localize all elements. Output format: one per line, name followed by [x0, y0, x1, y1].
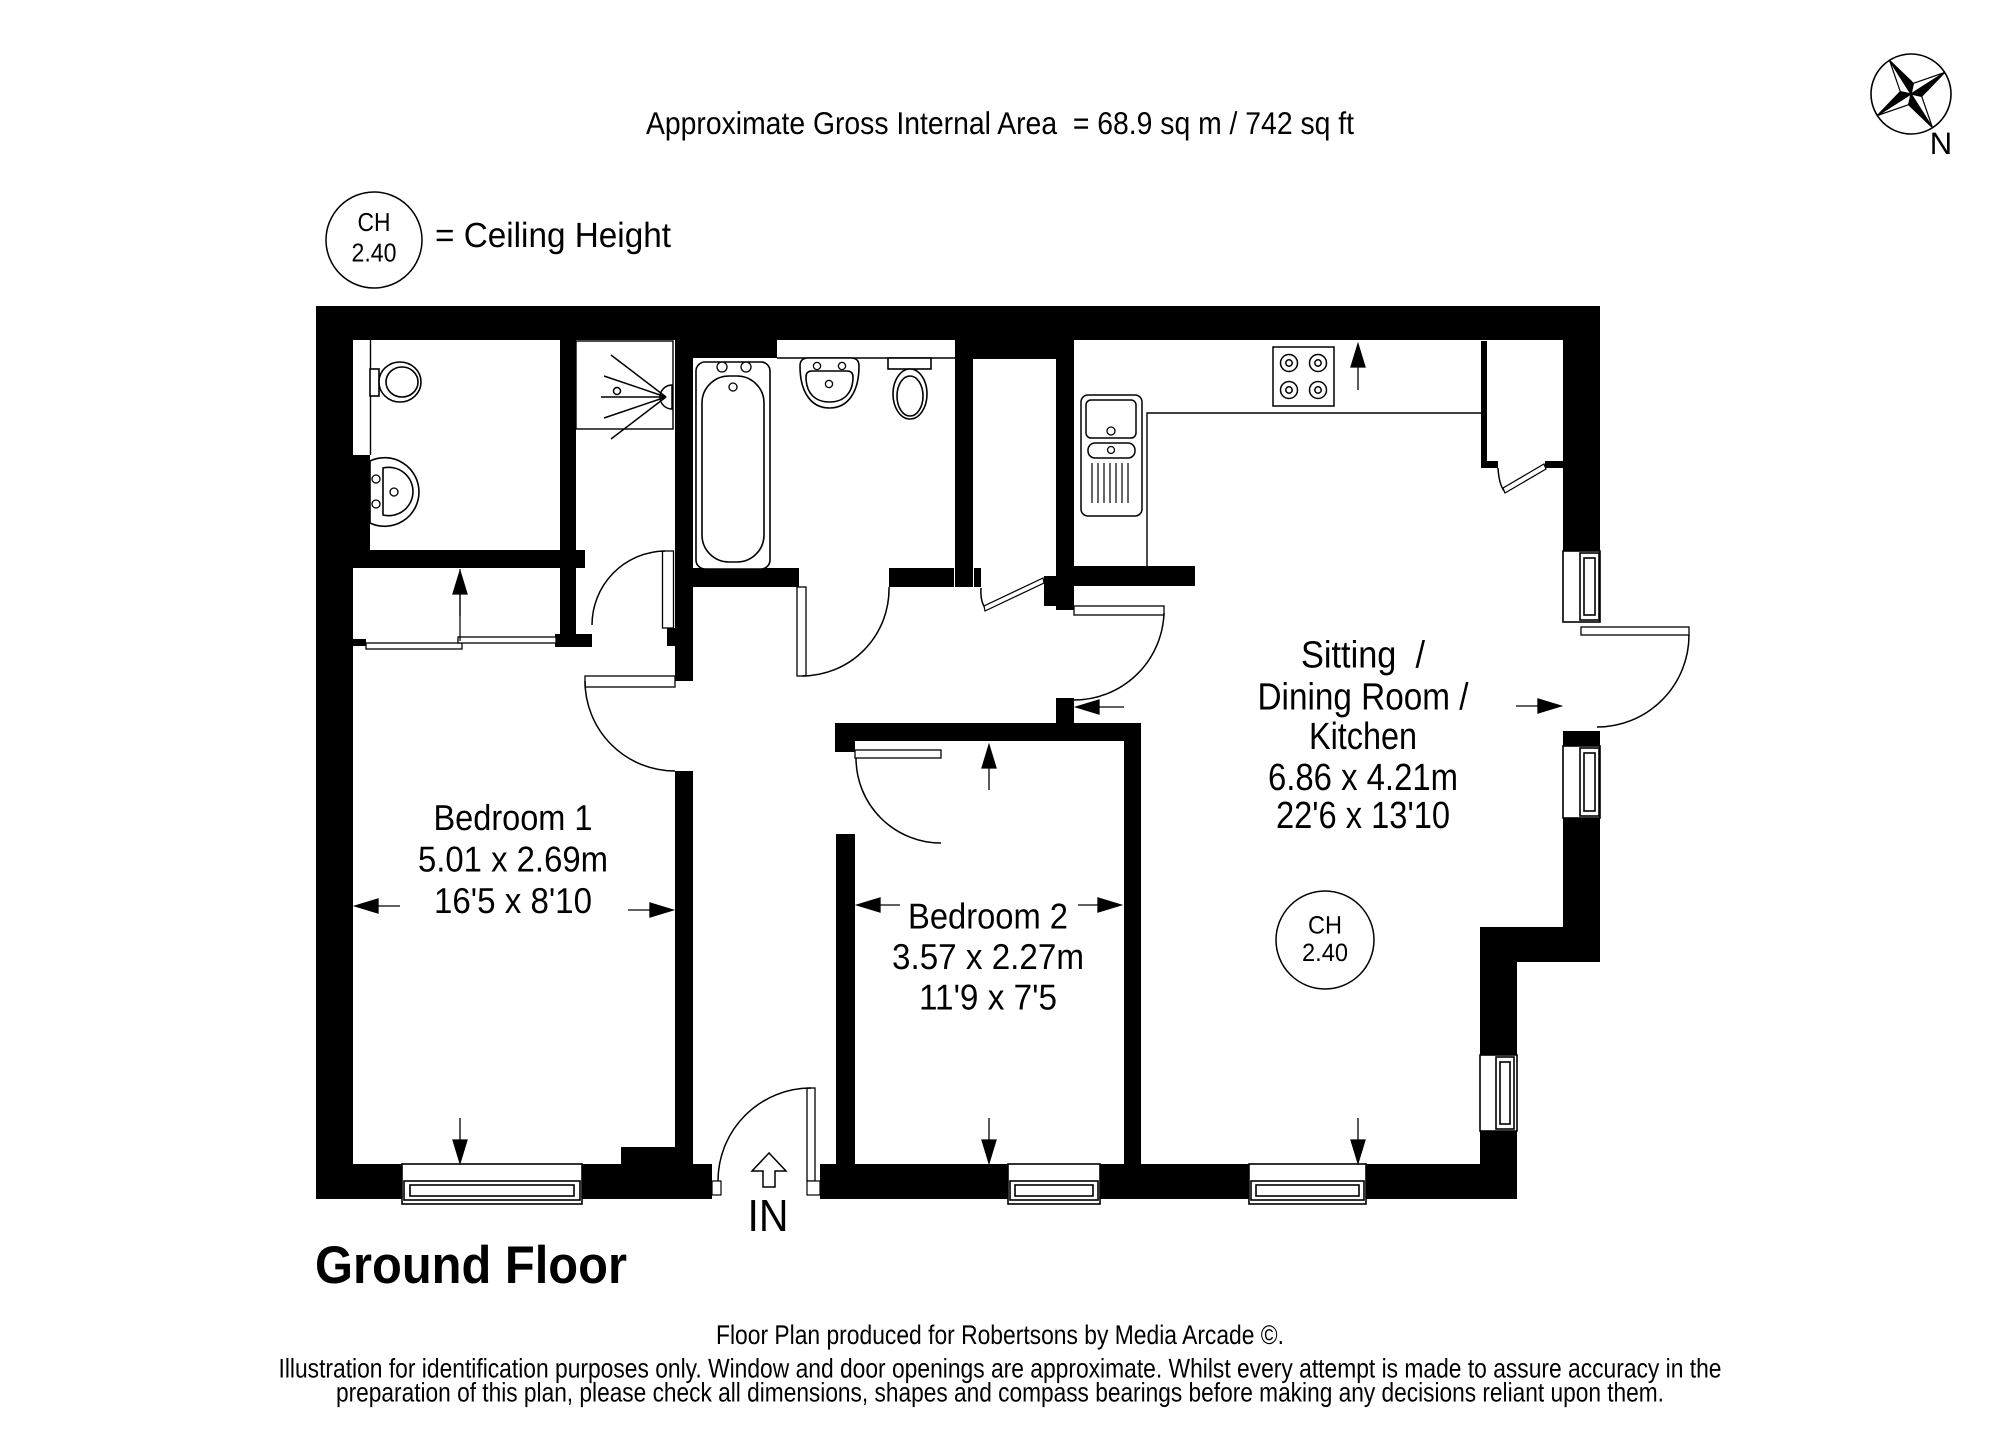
svg-text:5.01 x 2.69m: 5.01 x 2.69m	[418, 839, 608, 880]
svg-text:Kitchen: Kitchen	[1309, 716, 1417, 758]
svg-text:6.86 x 4.21m: 6.86 x 4.21m	[1268, 757, 1458, 799]
svg-text:Bedroom 2: Bedroom 2	[908, 896, 1068, 937]
svg-text:Floor Plan produced for Robert: Floor Plan produced for Robertsons by Me…	[716, 1320, 1284, 1350]
svg-text:Approximate Gross Internal Are: Approximate Gross Internal Area = 68.9 s…	[646, 105, 1354, 141]
svg-text:3.57 x 2.27m: 3.57 x 2.27m	[892, 936, 1084, 977]
svg-text:Sitting /: Sitting /	[1301, 635, 1425, 677]
svg-text:= Ceiling Height: = Ceiling Height	[435, 216, 671, 255]
svg-text:2.40: 2.40	[352, 238, 397, 268]
svg-text:22'6 x 13'10: 22'6 x 13'10	[1276, 795, 1450, 837]
svg-text:16'5 x 8'10: 16'5 x 8'10	[434, 880, 592, 921]
svg-text:11'9 x 7'5: 11'9 x 7'5	[919, 977, 1057, 1018]
svg-text:Dining Room /: Dining Room /	[1258, 677, 1469, 719]
svg-text:CH: CH	[358, 207, 391, 237]
svg-text:N: N	[1930, 126, 1952, 161]
svg-text:CH: CH	[1308, 912, 1342, 940]
svg-text:2.40: 2.40	[1302, 939, 1348, 967]
svg-text:preparation of this plan, plea: preparation of this plan, please check a…	[336, 1377, 1664, 1407]
svg-text:Bedroom 1: Bedroom 1	[434, 797, 593, 838]
svg-text:IN: IN	[748, 1190, 789, 1241]
svg-text:Ground Floor: Ground Floor	[315, 1236, 627, 1295]
